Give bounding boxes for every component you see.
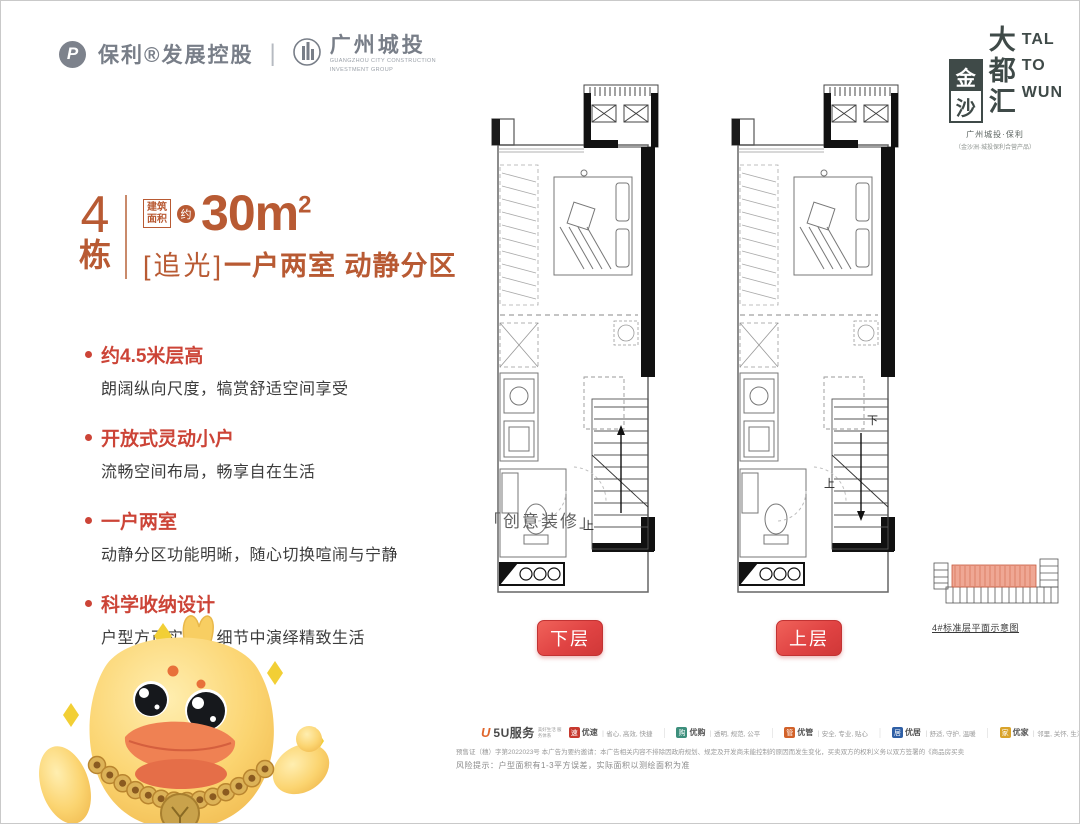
disclaimer-line1: 预售证（穗）字第2022023号 本广告为要约邀请：本广告相关内容不排除因政府规…: [456, 746, 964, 756]
upper-floor-button[interactable]: 上层: [776, 620, 842, 656]
mascot-wing: [263, 726, 338, 804]
bullet-icon: [85, 517, 92, 524]
service-brand-logo: U 5U服务 美好生活 服务体系: [481, 724, 564, 741]
feature-desc: 流畅空间布局，畅享自在生活: [101, 458, 421, 482]
floorplan-svg-0: 上: [488, 77, 674, 613]
service-item: 购 优购 ｜透明, 规范, 公平: [676, 727, 760, 738]
mascot-bill: [125, 722, 235, 789]
key-plan-svg: [932, 551, 1064, 613]
project-brand: 金 沙 大 都 汇 TAL TO WUN 广州城投·保利 （金沙洲·城投保利合营…: [927, 25, 1063, 151]
key-plan-highlight: [952, 565, 1036, 587]
service-desc: ｜舒适, 守护, 温暖: [923, 728, 976, 738]
brand-subtitle: 广州城投·保利: [927, 129, 1063, 140]
service-desc: ｜省心, 高效, 快捷: [600, 728, 653, 738]
service-name: 优购: [689, 727, 705, 738]
developer-logos: P 保利®发展控股 | 广州城投 GUANGZHOU CITY CONSTRUC…: [59, 35, 436, 73]
svg-text:下: 下: [867, 415, 878, 427]
service-name: 优管: [797, 727, 813, 738]
service-item: 居 优居 ｜舒适, 守护, 温暖: [892, 727, 976, 738]
floorplan-upper: 下上: [728, 77, 914, 613]
lower-floor-button[interactable]: 下层: [537, 620, 603, 656]
brand-subtitle-2: （金沙洲·城投保利合营产品）: [927, 142, 1063, 151]
service-brand-name: 5U服务: [493, 724, 534, 741]
brand-chinese: 大 都 汇: [989, 25, 1016, 123]
disclaimer-line2: 风险提示：户型面积有1-3平方误差，实际面积以测绘面积为准: [456, 760, 964, 771]
service-icon: 速: [569, 727, 580, 738]
feature-desc: 朗阔纵向尺度，犒赏舒适空间享受: [101, 375, 421, 399]
feature-title: 一户两室: [101, 507, 177, 534]
service-item: 速 优速 ｜省心, 高效, 快捷: [569, 727, 653, 738]
building-key-plan: 4#标准层平面示意图: [932, 551, 1064, 634]
bullet-icon: [85, 351, 92, 358]
feature-item: 一户两室 动静分区功能明晰，随心切换喧闹与宁静: [85, 507, 421, 565]
duck-mascot: [13, 597, 347, 824]
disclaimer: 预售证（穗）字第2022023号 本广告为要约邀请：本广告相关内容不排除因政府规…: [456, 746, 964, 771]
feature-item: 开放式灵动小户 流畅空间布局，畅享自在生活: [85, 424, 421, 482]
seal-char-1: 金: [951, 61, 981, 91]
area-value: 30m2: [201, 191, 310, 236]
service-item: 家 优家 ｜邻里, 关怀, 生活: [1000, 727, 1080, 738]
gzci-logo-en1: GUANGZHOU CITY CONSTRUCTION: [330, 59, 436, 65]
service-separator: ｜: [659, 725, 669, 740]
floorplan-lower: 上: [488, 77, 674, 613]
service-icon: 居: [892, 727, 903, 738]
floorplan-svg-1: 下上: [728, 77, 914, 613]
unit-headline: 4 栋 建筑 面积 约 30m2 [追光]一户两室 动静分区: [79, 191, 457, 283]
brand-seal: 金 沙: [949, 59, 983, 123]
gzci-logo-text: 广州城投: [330, 35, 436, 56]
service-separator: ｜: [767, 725, 777, 740]
headline-divider: [125, 195, 127, 279]
feature-item: 约4.5米层高 朗阔纵向尺度，犒赏舒适空间享受: [85, 341, 421, 399]
poster-canvas: P 保利®发展控股 | 广州城投 GUANGZHOU CITY CONSTRUC…: [0, 0, 1080, 824]
key-plan-caption: 4#标准层平面示意图: [932, 621, 1064, 634]
service-icon: 管: [784, 727, 795, 738]
gzci-logo-icon: [292, 37, 322, 72]
service-icon: 家: [1000, 727, 1011, 738]
brand-english: TAL TO WUN: [1022, 27, 1063, 123]
gzci-logo-en2: INVESTMENT GROUP: [330, 68, 436, 74]
svg-text:上: 上: [824, 477, 835, 490]
logo-divider: |: [269, 40, 275, 68]
deco-style-label: 「创意装修」: [484, 507, 598, 532]
service-separator: ｜: [875, 725, 885, 740]
feature-desc: 动静分区功能明晰，随心切换喧闹与宁静: [101, 541, 421, 565]
service-brand-row: U 5U服务 美好生活 服务体系 速 优速 ｜省心, 高效, 快捷 ｜ 购 优购…: [481, 724, 961, 741]
seal-char-2: 沙: [951, 91, 981, 121]
poly-logo-text: 保利®发展控股: [98, 39, 253, 69]
building-number: 4 栋: [79, 191, 111, 283]
area-label-box: 建筑 面积: [143, 199, 171, 228]
service-icon: 购: [676, 727, 687, 738]
service-name: 优家: [1013, 727, 1029, 738]
service-name: 优居: [905, 727, 921, 738]
service-brand-sub: 美好生活 服务体系: [538, 727, 564, 739]
service-desc: ｜邻里, 关怀, 生活: [1031, 728, 1080, 738]
feature-title: 约4.5米层高: [101, 341, 203, 368]
service-name: 优速: [582, 727, 598, 738]
approx-badge: 约: [177, 205, 195, 223]
service-separator: ｜: [983, 725, 993, 740]
feature-title: 开放式灵动小户: [101, 424, 234, 451]
service-desc: ｜透明, 规范, 公平: [707, 728, 760, 738]
bullet-icon: [85, 434, 92, 441]
service-item: 管 优管 ｜安全, 专业, 贴心: [784, 727, 868, 738]
service-desc: ｜安全, 专业, 贴心: [815, 728, 868, 738]
poly-logo-icon: P: [59, 41, 86, 68]
unit-tagline: [追光]一户两室 动静分区: [143, 244, 457, 283]
5u-logo-icon: U: [481, 725, 490, 740]
